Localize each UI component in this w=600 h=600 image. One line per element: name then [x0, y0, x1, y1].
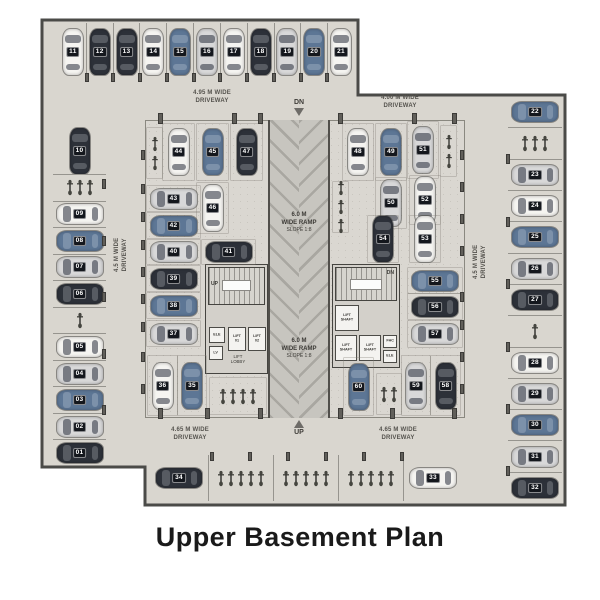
structural-column	[141, 267, 145, 277]
lift-lobby-label: LIFT LOBBY	[222, 355, 254, 365]
structural-column	[102, 236, 106, 246]
parking-stall-26: 26	[508, 253, 562, 284]
stall-number: 05	[73, 342, 87, 352]
structural-column	[338, 113, 343, 124]
motorcycle-icon	[86, 178, 94, 197]
structural-column	[460, 150, 464, 160]
motorcycle-icon	[227, 469, 235, 488]
room-lv: LV	[209, 346, 223, 360]
motorcycle-icon	[247, 469, 255, 488]
parking-stall-16: 16	[193, 23, 220, 81]
structural-column	[258, 113, 263, 124]
motorcycle-parking	[282, 469, 330, 488]
parking-stall-24: 24	[508, 190, 562, 221]
car-top-view: 20	[304, 29, 324, 75]
stall-number: 32	[528, 483, 542, 493]
structural-column	[338, 408, 343, 419]
room-lift-shaft-2: LIFT SHAFT	[335, 335, 357, 361]
parking-stall-20: 20	[300, 23, 327, 81]
parking-stall-05: 05	[53, 333, 106, 360]
motorcycle-icon	[357, 469, 365, 488]
car-top-view: 15	[170, 29, 190, 75]
stall-number: 06	[73, 289, 87, 299]
stall-number: 17	[227, 47, 241, 57]
parking-stall-08: 08	[53, 227, 106, 254]
motorcycle-icon	[302, 469, 310, 488]
parking-stall-30: 30	[508, 409, 562, 440]
car-top-view: 22	[512, 102, 558, 122]
stall-number: 33	[426, 473, 440, 483]
stall-number: 02	[73, 422, 87, 432]
structural-column	[324, 452, 328, 461]
car-top-view: 24	[512, 196, 558, 216]
structural-column	[102, 292, 106, 302]
stall-number: 03	[73, 395, 87, 405]
floor-plan-page: 6.0 M WIDE RAMP SLOPE 1:8 6.0 M WIDE RAM…	[0, 0, 600, 600]
right-stair-lift-core: DN LIFT SHAFT LIFT SHAFT LIFT SHAFT FHC …	[332, 264, 400, 368]
car-top-view: 02	[57, 417, 103, 437]
driveway-label-left: 4.5 M WIDEDRIVEWAY	[114, 227, 130, 283]
structural-column	[362, 452, 366, 461]
bottom-parking-row: 3433	[150, 455, 462, 501]
parking-stall-29: 29	[508, 378, 562, 409]
plan-title: Upper Basement Plan	[0, 522, 600, 553]
structural-column	[452, 408, 457, 419]
parking-stall-03: 03	[53, 386, 106, 413]
structural-column	[460, 352, 464, 362]
structural-column	[325, 73, 329, 82]
structural-column	[158, 113, 163, 124]
stall-number: 28	[528, 358, 542, 368]
structural-column	[506, 342, 510, 352]
parking-stall-32: 32	[508, 472, 562, 503]
left-parking-column: 10090807060504030201	[53, 128, 106, 466]
structural-column	[506, 154, 510, 164]
parking-stall-13: 13	[113, 23, 140, 81]
down-arrow-icon	[294, 108, 304, 116]
car-top-view: 33	[410, 468, 456, 488]
stall-number: 25	[528, 232, 542, 242]
car-top-view: 01	[57, 443, 103, 463]
parking-stall-15: 15	[166, 23, 193, 81]
driveway-label-bottom-right: 4.65 M WIDEDRIVEWAY	[358, 427, 438, 443]
parking-stall-10: 10	[53, 128, 106, 174]
structural-column	[248, 452, 252, 461]
parking-stall-14: 14	[139, 23, 166, 81]
stall-number: 15	[173, 47, 187, 57]
motorcycle-parking	[347, 469, 395, 488]
motorcycle-parking	[217, 469, 265, 488]
structural-column	[210, 452, 214, 461]
stall-number: 10	[73, 146, 87, 156]
car-top-view: 19	[277, 29, 297, 75]
parking-stall-07: 07	[53, 254, 106, 281]
structural-column	[141, 352, 145, 362]
car-top-view: 26	[512, 259, 558, 279]
structural-column	[460, 214, 464, 224]
stall-number: 26	[528, 264, 542, 274]
driveway-label-right: 4.5 M WIDEDRIVEWAY	[473, 234, 489, 290]
structural-column	[102, 405, 106, 415]
stall-number: 01	[73, 448, 87, 458]
structural-column	[138, 73, 142, 82]
structural-column	[218, 73, 222, 82]
top-parking-row: 1112131415161718192021	[60, 23, 354, 81]
structural-column	[460, 292, 464, 302]
parking-stall-27: 27	[508, 284, 562, 315]
car-top-view: 10	[70, 128, 90, 174]
stall-number: 29	[528, 389, 542, 399]
car-top-view: 23	[512, 165, 558, 185]
stall-number: 31	[528, 452, 542, 462]
structural-column	[272, 73, 276, 82]
motorcycle-icon	[531, 134, 539, 153]
motorcycle-slot	[508, 127, 562, 158]
motorcycle-parking	[531, 322, 539, 341]
parking-stall-33: 33	[403, 455, 462, 501]
car-top-view: 17	[224, 29, 244, 75]
structural-column	[102, 179, 106, 189]
left-staircase: UP	[208, 267, 265, 305]
stall-number: 27	[528, 295, 542, 305]
parking-stall-12: 12	[86, 23, 113, 81]
stall-number: 08	[73, 236, 87, 246]
structural-column	[452, 113, 457, 124]
parking-stall-04: 04	[53, 360, 106, 387]
room-lift-01: LIFT 01	[228, 327, 246, 351]
structural-column	[506, 217, 510, 227]
structural-column	[460, 384, 464, 394]
structural-column	[506, 466, 510, 476]
room-ele: ELE	[209, 327, 225, 343]
car-top-view: 30	[512, 415, 558, 435]
stall-number: 11	[66, 47, 79, 57]
structural-column	[111, 73, 115, 82]
parking-stall-21: 21	[327, 23, 354, 81]
structural-column	[192, 73, 196, 82]
car-top-view: 14	[143, 29, 163, 75]
car-top-view: 12	[90, 29, 110, 75]
car-top-view: 27	[512, 290, 558, 310]
motorcycle-slot	[338, 455, 403, 501]
structural-column	[258, 408, 263, 419]
parking-stall-01: 01	[53, 439, 106, 466]
structural-column	[390, 408, 395, 419]
car-top-view: 21	[331, 29, 351, 75]
car-top-view: 25	[512, 227, 558, 247]
car-top-view: 13	[117, 29, 137, 75]
motorcycle-icon	[347, 469, 355, 488]
motorcycle-slot	[53, 307, 106, 334]
parking-stall-23: 23	[508, 159, 562, 190]
stall-number: 09	[73, 209, 87, 219]
car-top-view: 34	[156, 468, 202, 488]
motorcycle-parking	[66, 178, 94, 197]
ramp-chevrons-right	[299, 120, 328, 418]
parking-stall-11: 11	[60, 23, 86, 81]
right-parking-column: 2223242526272829303132	[508, 97, 562, 503]
ramp-up-marker: UP	[288, 419, 310, 437]
stall-number: 14	[146, 47, 160, 57]
car-top-view: 09	[57, 204, 103, 224]
structural-column	[460, 320, 464, 330]
structural-column	[460, 182, 464, 192]
car-top-view: 08	[57, 231, 103, 251]
structural-column	[286, 452, 290, 461]
driveway-label-bottom-left: 4.65 M WIDEDRIVEWAY	[150, 427, 230, 443]
car-top-view: 31	[512, 447, 558, 467]
ramp-label-upper: 6.0 M WIDE RAMP SLOPE 1:8	[270, 212, 328, 233]
car-top-view: 28	[512, 353, 558, 373]
driveway-label-top-right: 4.00 M WIDEDRIVEWAY	[360, 95, 440, 111]
motorcycle-icon	[541, 134, 549, 153]
structural-column	[141, 240, 145, 250]
structural-column	[158, 408, 163, 419]
motorcycle-icon	[237, 469, 245, 488]
structural-column	[460, 246, 464, 256]
structural-column	[141, 184, 145, 194]
motorcycle-icon	[312, 469, 320, 488]
parking-stall-18: 18	[247, 23, 274, 81]
car-top-view: 05	[57, 337, 103, 357]
motorcycle-parking	[521, 134, 549, 153]
parking-stall-06: 06	[53, 280, 106, 307]
parking-stall-09: 09	[53, 201, 106, 228]
structural-column	[506, 404, 510, 414]
left-stair-lift-core: UP ELE LV LIFT 01 LIFT 02 LIFT LOBBY	[205, 264, 268, 374]
structural-column	[141, 294, 145, 304]
stall-number: 23	[528, 170, 542, 180]
motorcycle-icon	[217, 469, 225, 488]
ramp-down-marker: DN	[288, 99, 310, 117]
parking-stall-25: 25	[508, 221, 562, 252]
structural-column	[102, 349, 106, 359]
structural-column	[412, 113, 417, 124]
motorcycle-icon	[521, 134, 529, 153]
motorcycle-slot	[53, 174, 106, 201]
structural-column	[299, 73, 303, 82]
motorcycle-icon	[387, 469, 395, 488]
motorcycle-icon	[377, 469, 385, 488]
room-ele-2: ELE	[383, 350, 397, 363]
right-staircase: DN	[335, 267, 397, 301]
room-lift-shaft-3: LIFT SHAFT	[359, 335, 381, 361]
parking-stall-28: 28	[508, 347, 562, 378]
structural-column	[85, 73, 89, 82]
motorcycle-icon	[76, 311, 84, 330]
room-lift-shaft-1: LIFT SHAFT	[335, 305, 359, 331]
parking-stall-17: 17	[220, 23, 247, 81]
structural-column	[245, 73, 249, 82]
motorcycle-slot	[208, 455, 273, 501]
room-fhc: FHC	[383, 335, 397, 348]
car-top-view: 06	[57, 284, 103, 304]
stall-number: 19	[280, 47, 294, 57]
driveway-label-top-left: 4.95 M WIDEDRIVEWAY	[172, 90, 252, 106]
car-top-view: 04	[57, 364, 103, 384]
central-ramp: 6.0 M WIDE RAMP SLOPE 1:8 6.0 M WIDE RAM…	[268, 120, 330, 418]
motorcycle-slot	[508, 315, 562, 346]
motorcycle-parking	[76, 311, 84, 330]
stall-number: 30	[528, 420, 542, 430]
car-top-view: 07	[57, 257, 103, 277]
structural-column	[232, 113, 237, 124]
structural-column	[205, 408, 210, 419]
structural-column	[141, 212, 145, 222]
stall-number: 12	[93, 47, 107, 57]
stall-number: 22	[528, 107, 542, 117]
stall-number: 34	[172, 473, 186, 483]
structural-column	[506, 279, 510, 289]
parking-stall-02: 02	[53, 413, 106, 440]
structural-column	[400, 452, 404, 461]
stall-number: 07	[73, 262, 87, 272]
stall-number: 20	[307, 47, 321, 57]
car-top-view: 29	[512, 384, 558, 404]
up-arrow-icon	[294, 420, 304, 428]
stall-number: 13	[120, 47, 134, 57]
car-top-view: 03	[57, 390, 103, 410]
stall-number: 04	[73, 369, 87, 379]
motorcycle-slot	[273, 455, 338, 501]
car-top-view: 18	[251, 29, 271, 75]
stall-number: 16	[200, 47, 214, 57]
car-top-view: 32	[512, 478, 558, 498]
structural-column	[141, 322, 145, 332]
motorcycle-icon	[292, 469, 300, 488]
stall-number: 24	[528, 201, 542, 211]
motorcycle-icon	[322, 469, 330, 488]
stall-number: 18	[254, 47, 268, 57]
parking-stall-19: 19	[274, 23, 301, 81]
ramp-chevrons-left	[270, 120, 299, 418]
parking-stall-22: 22	[508, 97, 562, 127]
car-top-view: 11	[63, 29, 83, 75]
structural-column	[141, 384, 145, 394]
motorcycle-icon	[76, 178, 84, 197]
room-lift-02: LIFT 02	[248, 327, 266, 351]
parking-stall-31: 31	[508, 440, 562, 471]
motorcycle-icon	[531, 322, 539, 341]
motorcycle-icon	[282, 469, 290, 488]
car-top-view: 16	[197, 29, 217, 75]
upper-basement-plan-drawing: 6.0 M WIDE RAMP SLOPE 1:8 6.0 M WIDE RAM…	[0, 0, 600, 512]
structural-column	[165, 73, 169, 82]
motorcycle-icon	[367, 469, 375, 488]
parking-stall-34: 34	[150, 455, 208, 501]
structural-column	[141, 150, 145, 160]
stall-number: 21	[334, 47, 348, 57]
ramp-label-lower: 6.0 M WIDE RAMP SLOPE 1:8	[270, 338, 328, 359]
motorcycle-icon	[257, 469, 265, 488]
motorcycle-icon	[66, 178, 74, 197]
